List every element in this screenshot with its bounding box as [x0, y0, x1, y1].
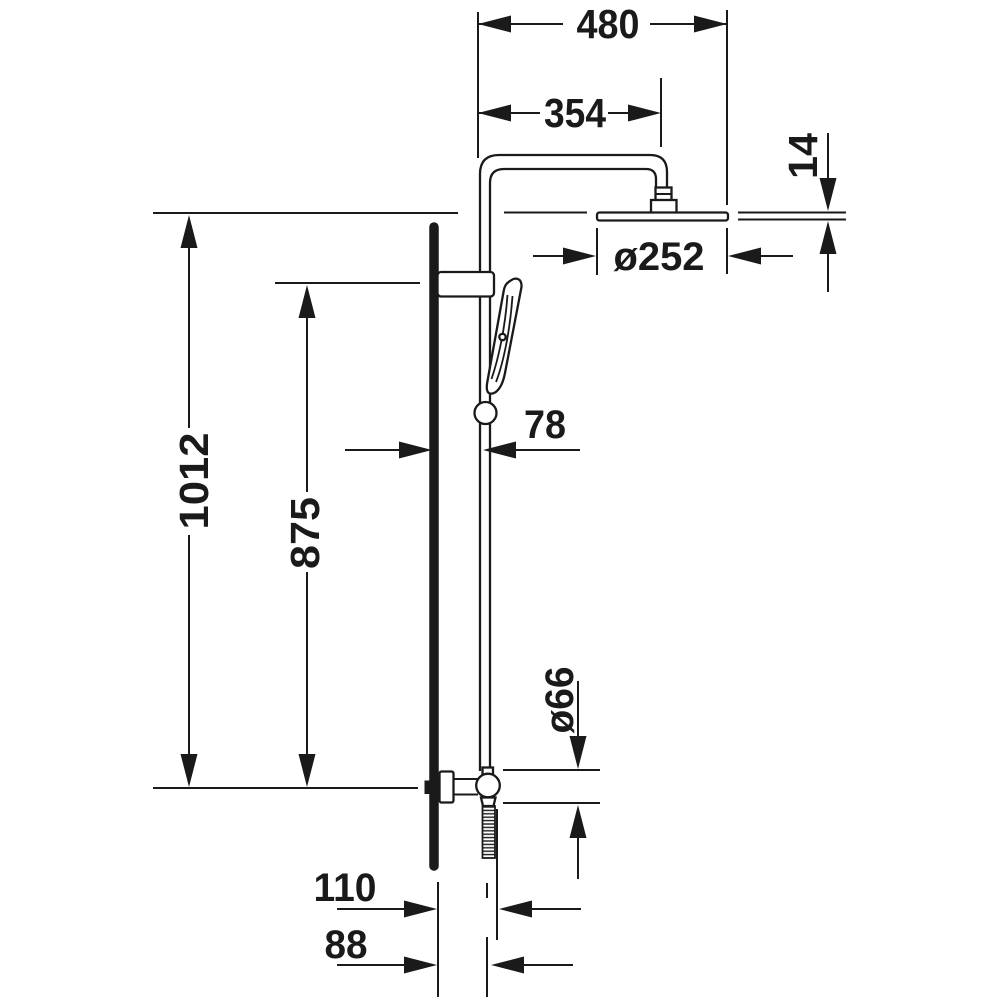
dimension-total-height: 1012: [171, 215, 217, 787]
arrowhead-left: [491, 957, 524, 974]
dim-arm-projection-label: 354: [544, 90, 606, 136]
arrowhead-down: [570, 736, 587, 769]
arrowhead-down: [181, 754, 198, 787]
outlet-escutcheon: [440, 772, 454, 803]
hose-nut: [481, 798, 496, 807]
dimension-rail-height: 875: [282, 285, 328, 787]
arrowhead-right: [399, 442, 432, 459]
arrowhead-down: [820, 178, 837, 211]
arrowhead-right: [404, 901, 437, 918]
dimension-head-diameter: ø252: [533, 235, 793, 279]
arrowhead-up: [570, 805, 587, 838]
shower-hose: [483, 806, 496, 858]
dim-rail-height-label: 875: [282, 497, 328, 569]
arrowhead-up: [820, 221, 837, 254]
head-connector-base: [651, 200, 677, 213]
dimension-rail-wall-offset: 78: [345, 403, 580, 459]
dimension-hose-offset-outer: 110: [314, 866, 582, 918]
arrowhead-left: [478, 16, 511, 33]
dim-arm-total-width-label: 480: [577, 1, 640, 47]
hose-ball-joint: [476, 774, 500, 798]
dim-head-diameter-label: ø252: [614, 235, 705, 279]
dim-rail-wall-offset-label: 78: [524, 403, 566, 447]
wall-supply-elbow: [440, 768, 500, 807]
arrowhead-left: [478, 105, 511, 122]
arrowhead-down: [299, 754, 316, 787]
arrowhead-right: [404, 957, 437, 974]
dim-hose-offset-outer-label: 110: [314, 866, 377, 910]
dim-hose-offset-center-label: 88: [325, 923, 368, 967]
arrowhead-left: [563, 248, 596, 265]
slider-knob: [475, 402, 497, 424]
wall-outlet-nub: [425, 781, 431, 795]
arrowhead-right: [694, 16, 727, 33]
rail-bracket: [438, 272, 495, 297]
dimension-hose-offset-center: 88: [325, 923, 574, 974]
arrowhead-left: [483, 442, 516, 459]
hand-shower-button: [499, 334, 505, 340]
arrowhead-up: [299, 285, 316, 318]
overhead-shower-plate: [597, 213, 728, 221]
dimension-arm-projection: 354: [478, 90, 661, 136]
technical-drawing-page: 480 354 ø252 14 1012 875: [0, 0, 1000, 1000]
arrowhead-right: [628, 105, 661, 122]
shower-dimension-diagram: 480 354 ø252 14 1012 875: [0, 0, 1000, 1000]
arrowhead-right: [728, 248, 761, 265]
reference-lines: [153, 10, 846, 997]
arrowhead-left: [499, 901, 532, 918]
dim-head-plate-thickness-label: 14: [780, 133, 826, 179]
arrowhead-up: [181, 215, 198, 248]
dim-outlet-diameter-label: ø66: [538, 667, 582, 734]
dim-total-height-label: 1012: [171, 433, 217, 530]
dimension-outlet-diameter: ø66: [538, 667, 587, 880]
dimension-arm-total-width: 480: [478, 1, 727, 47]
